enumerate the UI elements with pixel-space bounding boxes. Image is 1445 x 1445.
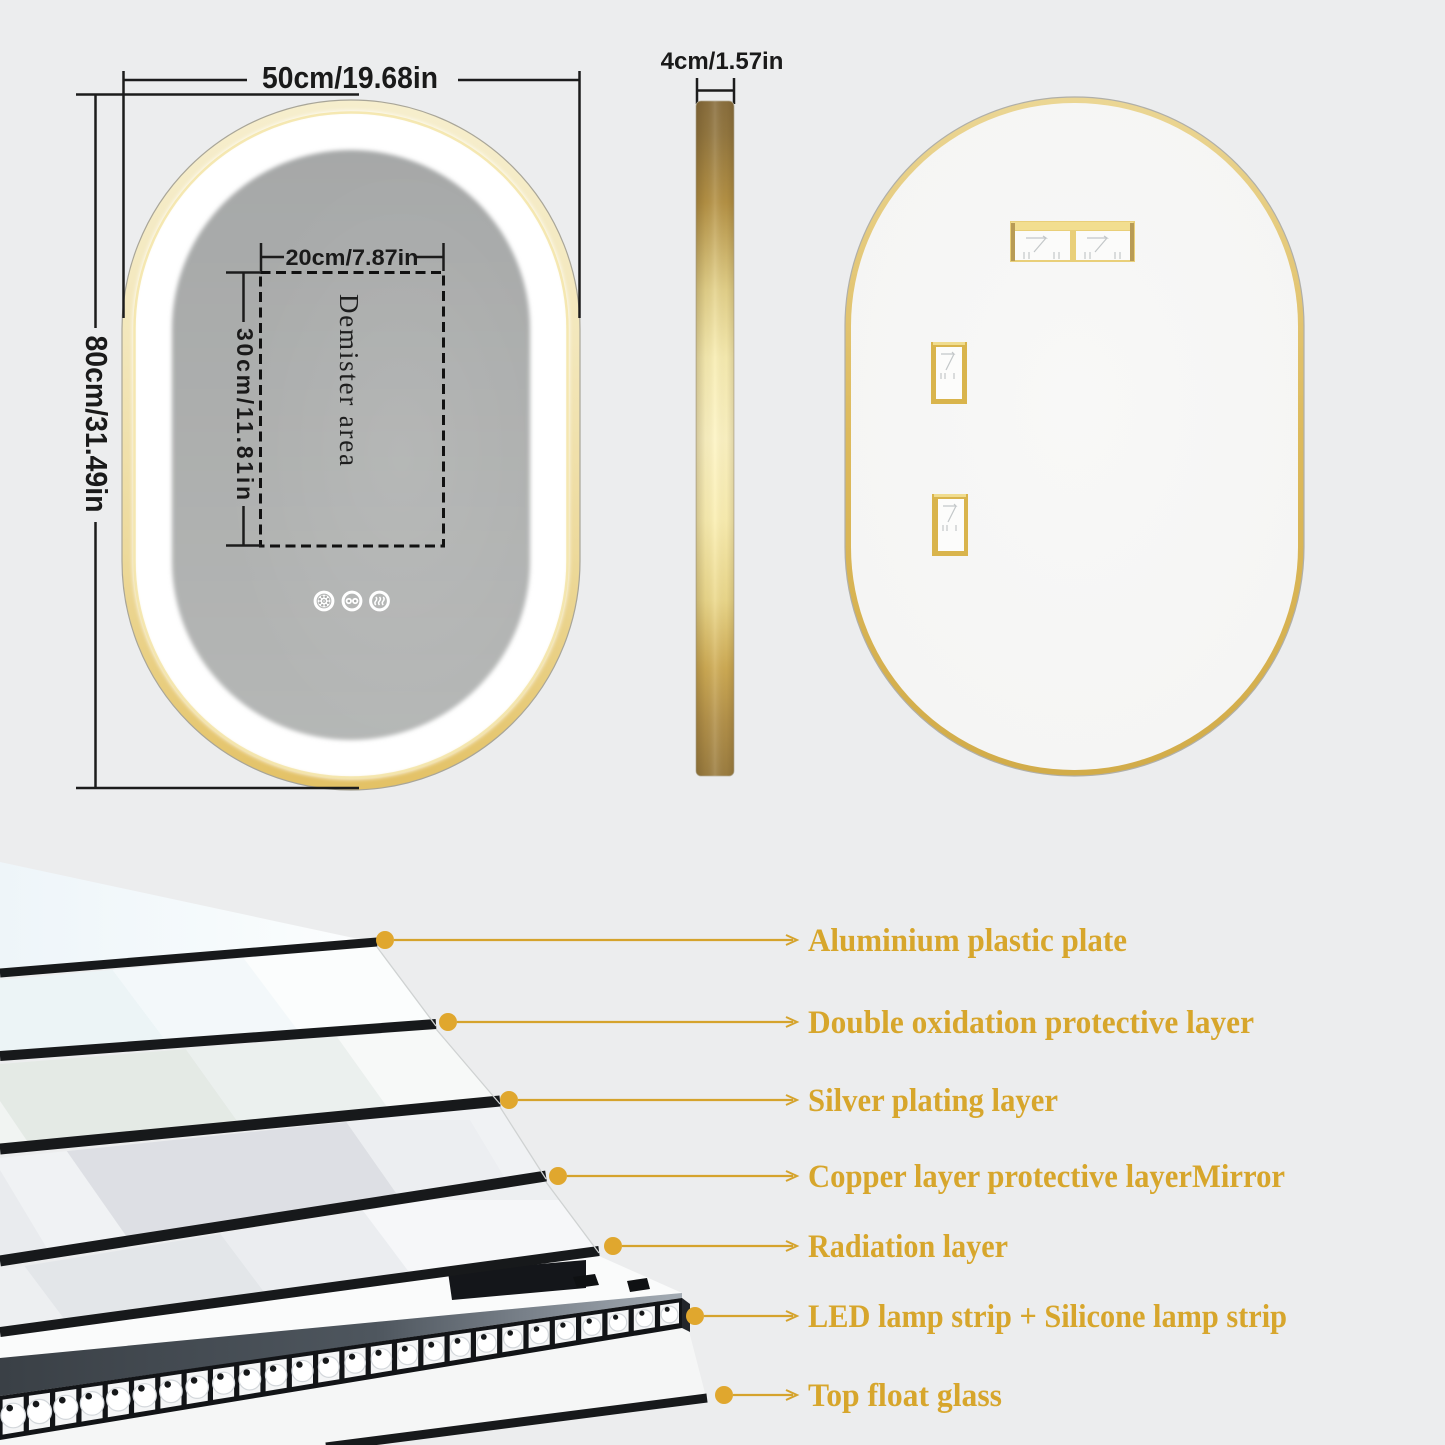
svg-text:Top float glass: Top float glass [808,1378,1002,1414]
svg-text:80cm/31.49in: 80cm/31.49in [79,336,114,513]
svg-text:LED lamp strip + Silicone lamp: LED lamp strip + Silicone lamp strip [808,1299,1287,1335]
svg-text:Demister area: Demister area [334,294,364,466]
svg-text:4cm/1.57in: 4cm/1.57in [661,48,784,75]
svg-text:20cm/7.87in: 20cm/7.87in [286,245,419,270]
svg-text:Copper layer protective layerM: Copper layer protective layerMirror [808,1159,1285,1195]
svg-text:Double oxidation protective la: Double oxidation protective layer [808,1005,1254,1041]
svg-text:Silver plating layer: Silver plating layer [808,1083,1058,1119]
svg-text:50cm/19.68in: 50cm/19.68in [262,60,438,95]
svg-text:Radiation layer: Radiation layer [808,1229,1008,1265]
svg-text:Aluminium plastic plate: Aluminium plastic plate [808,923,1127,959]
